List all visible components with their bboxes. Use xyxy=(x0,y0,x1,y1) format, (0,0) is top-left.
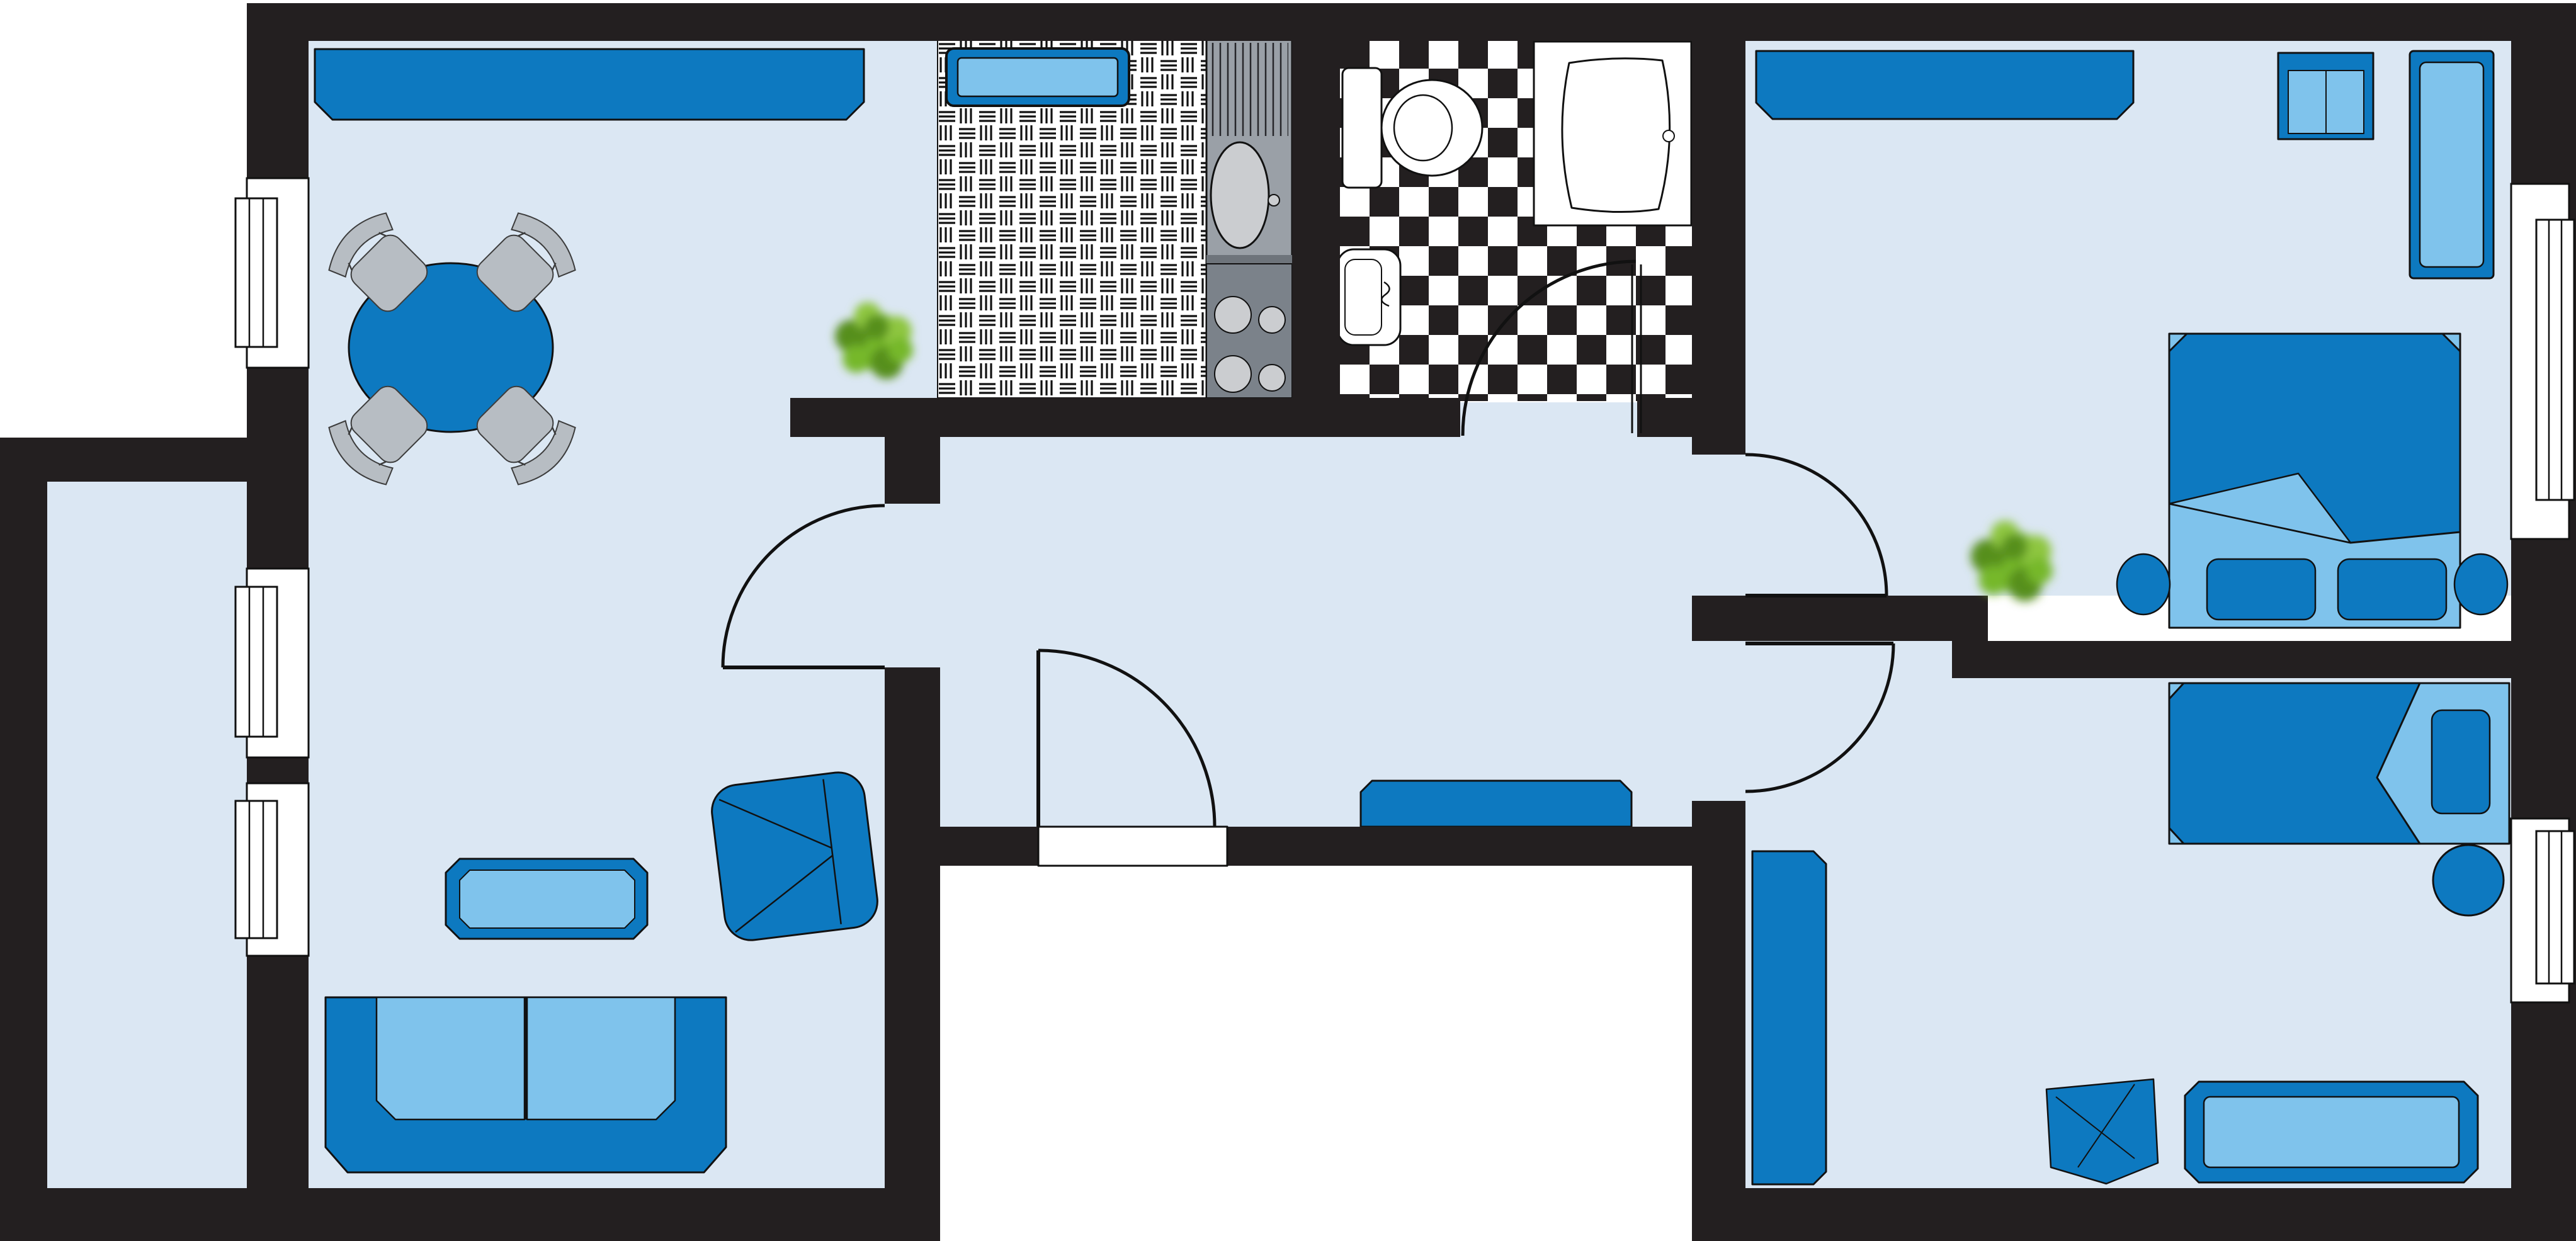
kitchen-counter-divider xyxy=(1206,255,1292,264)
window-living-2 xyxy=(235,569,309,757)
floor-hallway xyxy=(885,402,1692,827)
window-bedroom-bottom-pane xyxy=(2536,831,2574,983)
tall-cabinet-front xyxy=(2420,62,2483,267)
sofa-cushion-left xyxy=(377,997,525,1119)
plant-foliage xyxy=(888,337,913,363)
window-living-1 xyxy=(235,178,309,368)
wall-living-hall xyxy=(885,667,940,1188)
bedside-table xyxy=(2454,554,2507,615)
wardrobe-bedroom-bottom xyxy=(1752,851,1826,1184)
single-bed-pillow xyxy=(2432,710,2490,813)
wall-west xyxy=(0,438,309,482)
desk-chair xyxy=(2046,1079,2158,1184)
armchair-body xyxy=(709,769,880,943)
kitchen-faucet-dot xyxy=(1268,195,1279,206)
wall-left-low-1 xyxy=(247,482,309,569)
wall-bedroom-divider-a xyxy=(1745,596,1988,641)
floorplan-canvas xyxy=(0,0,2576,1241)
wall-door-pier xyxy=(885,437,940,504)
desk-top xyxy=(2204,1097,2459,1167)
wall-hall-bedrooms-low xyxy=(1692,801,1745,1188)
kitchen-drainer-hatch xyxy=(1210,43,1288,136)
wall-left-low-2 xyxy=(247,757,309,783)
wall-bedroom-divider-b xyxy=(1952,641,2511,678)
sofa-cushion-right xyxy=(527,997,675,1119)
shower-basin xyxy=(1562,59,1670,212)
plant-foliage xyxy=(864,315,889,340)
plant-foliage xyxy=(1978,565,2007,594)
stove-burner-small-2 xyxy=(1259,365,1285,391)
plant-foliage xyxy=(843,345,870,373)
bed-pillow xyxy=(2207,559,2315,620)
entry-threshold xyxy=(1038,827,1227,866)
floorplan-page xyxy=(0,0,2576,1241)
wardrobe-bedroom-top xyxy=(1756,51,2133,119)
wall-bottom-left xyxy=(0,1188,940,1241)
plant-foliage xyxy=(2001,534,2028,560)
window-living-3-pane xyxy=(235,801,277,938)
single-bed-duvet xyxy=(2169,683,2420,844)
stool xyxy=(2433,845,2504,915)
window-bedroom-top-pane xyxy=(2536,220,2574,500)
wall-left-mid xyxy=(247,368,309,438)
living-sideboard xyxy=(315,49,864,120)
stove-burner-large-1 xyxy=(1215,297,1251,333)
stove-burner-small-1 xyxy=(1259,307,1285,333)
window-living-3 xyxy=(235,783,309,956)
armchair xyxy=(709,769,880,943)
hall-sideboard xyxy=(1361,781,1631,827)
kitchen-basin-oval xyxy=(1211,142,1269,248)
stove-burner-large-2 xyxy=(1215,356,1251,392)
wall-top xyxy=(247,3,2576,41)
coffee-table-top xyxy=(460,870,635,928)
wall-hall-bedrooms-top xyxy=(1692,3,1745,455)
bed-pillow xyxy=(2338,559,2446,620)
kitchen-sink-basin xyxy=(958,58,1118,96)
toilet-seat xyxy=(1394,95,1452,161)
wall-kitchen-stub xyxy=(790,398,940,437)
wall-balcony-left xyxy=(0,482,47,1241)
bedside-table xyxy=(2117,554,2170,615)
toilet-tank xyxy=(1342,68,1382,188)
shower-drain xyxy=(1663,130,1674,142)
wall-left-low-3 xyxy=(247,956,309,1188)
window-living-1-pane xyxy=(235,198,277,347)
floor-balcony xyxy=(47,482,252,1188)
wall-hall-bedrooms-stub xyxy=(1692,596,1745,641)
wall-bottom-right xyxy=(1692,1188,2576,1241)
bath-sink-basin xyxy=(1345,259,1382,335)
wall-kitchen-bath xyxy=(1292,3,1340,437)
window-bedroom-top xyxy=(2511,184,2574,539)
wall-left-upper xyxy=(247,3,309,189)
plant-foliage xyxy=(2026,558,2053,584)
wall-kitchen-bottom xyxy=(940,398,1460,437)
window-living-2-pane xyxy=(235,587,277,737)
window-bedroom-bottom xyxy=(2511,819,2574,1002)
